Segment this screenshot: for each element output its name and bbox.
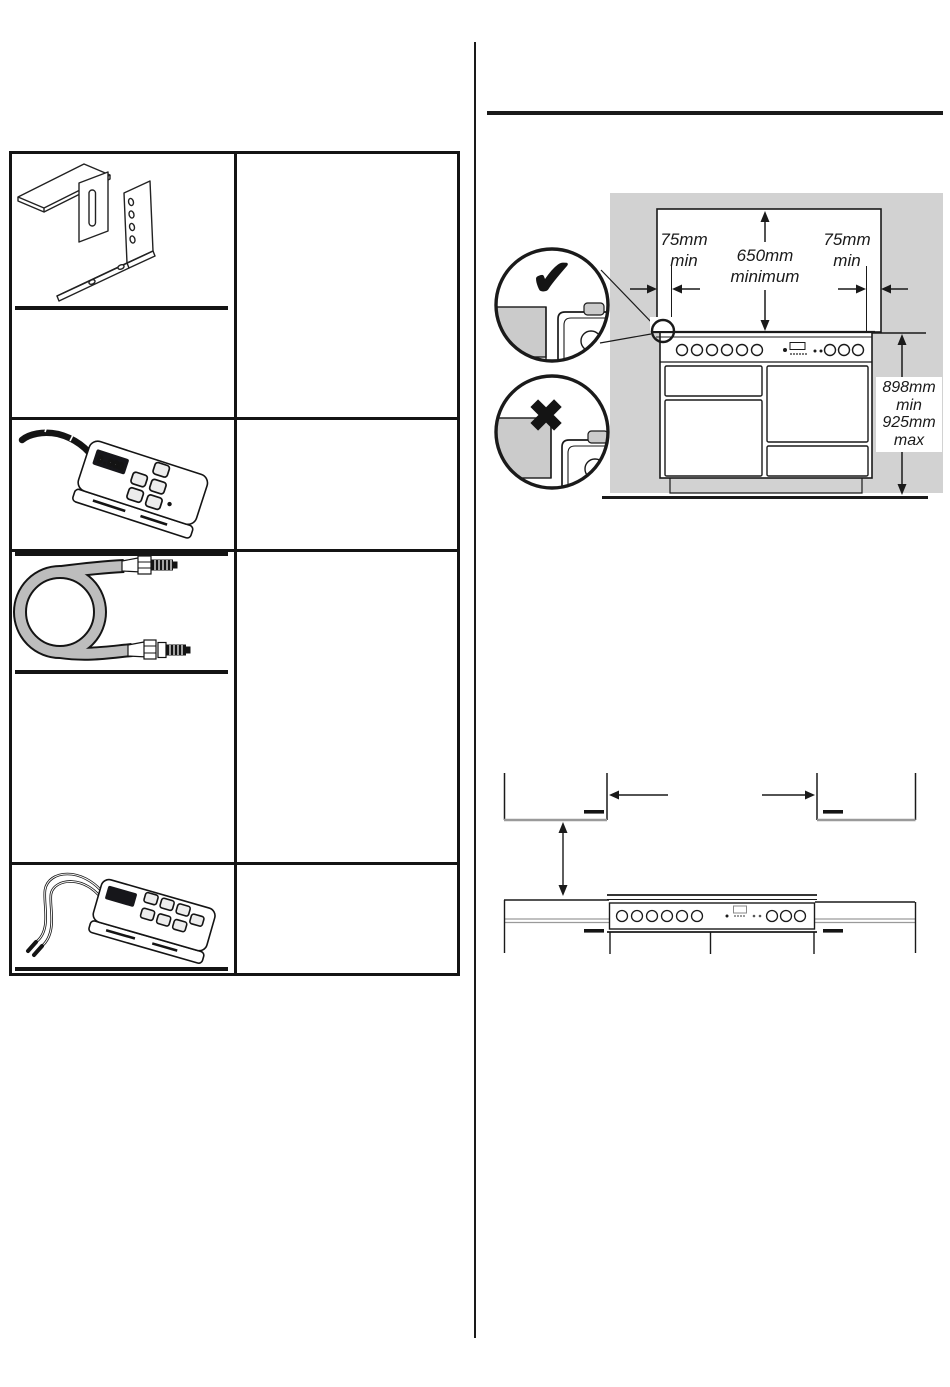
- flexible-gas-hose-illustration: [14, 556, 229, 668]
- parts-table-row-divider-1: [12, 417, 457, 420]
- vertical-clearance-arrow: [559, 822, 568, 896]
- wall-cabinets: [504, 773, 916, 820]
- range-cooker-front: [652, 332, 875, 493]
- cell-rule: [15, 967, 228, 971]
- cabinet-spacing-figure: [495, 765, 945, 965]
- parts-table-row-divider-3: [12, 862, 457, 865]
- clock-display: [790, 343, 805, 350]
- manual-page: 0.00Ω: [0, 0, 950, 1387]
- hose-fitting-bottom: [128, 640, 191, 659]
- parts-table-column-divider: [234, 154, 237, 973]
- column-divider-line: [474, 42, 476, 1338]
- electronic-tester-with-probe-illustration: 0.00Ω: [14, 428, 214, 546]
- check-icon: ✔: [521, 249, 583, 307]
- cooker-between-cabinets: [607, 895, 817, 954]
- left-clearance-label: 75mmmin: [648, 229, 720, 271]
- cross-icon: ✖: [517, 391, 575, 442]
- oven-doors: [665, 366, 868, 476]
- clock-display: [734, 906, 747, 913]
- hood-clearance-label: 650mmminimum: [713, 245, 817, 287]
- stability-bracket-illustration: [14, 158, 164, 303]
- cell-rule: [15, 306, 228, 310]
- cell-rule: [15, 670, 228, 674]
- flexible-probe: [22, 433, 96, 462]
- hose-fitting-top: [122, 556, 178, 574]
- side-clearance-arrows: [609, 791, 815, 800]
- height-range-label: 898mmmin 925mmmax: [876, 377, 942, 452]
- electronic-tester-with-leads-illustration: [14, 866, 219, 966]
- section-rule: [487, 111, 943, 115]
- cell-rule: [15, 552, 228, 556]
- right-clearance-label: 75mmmin: [811, 229, 883, 271]
